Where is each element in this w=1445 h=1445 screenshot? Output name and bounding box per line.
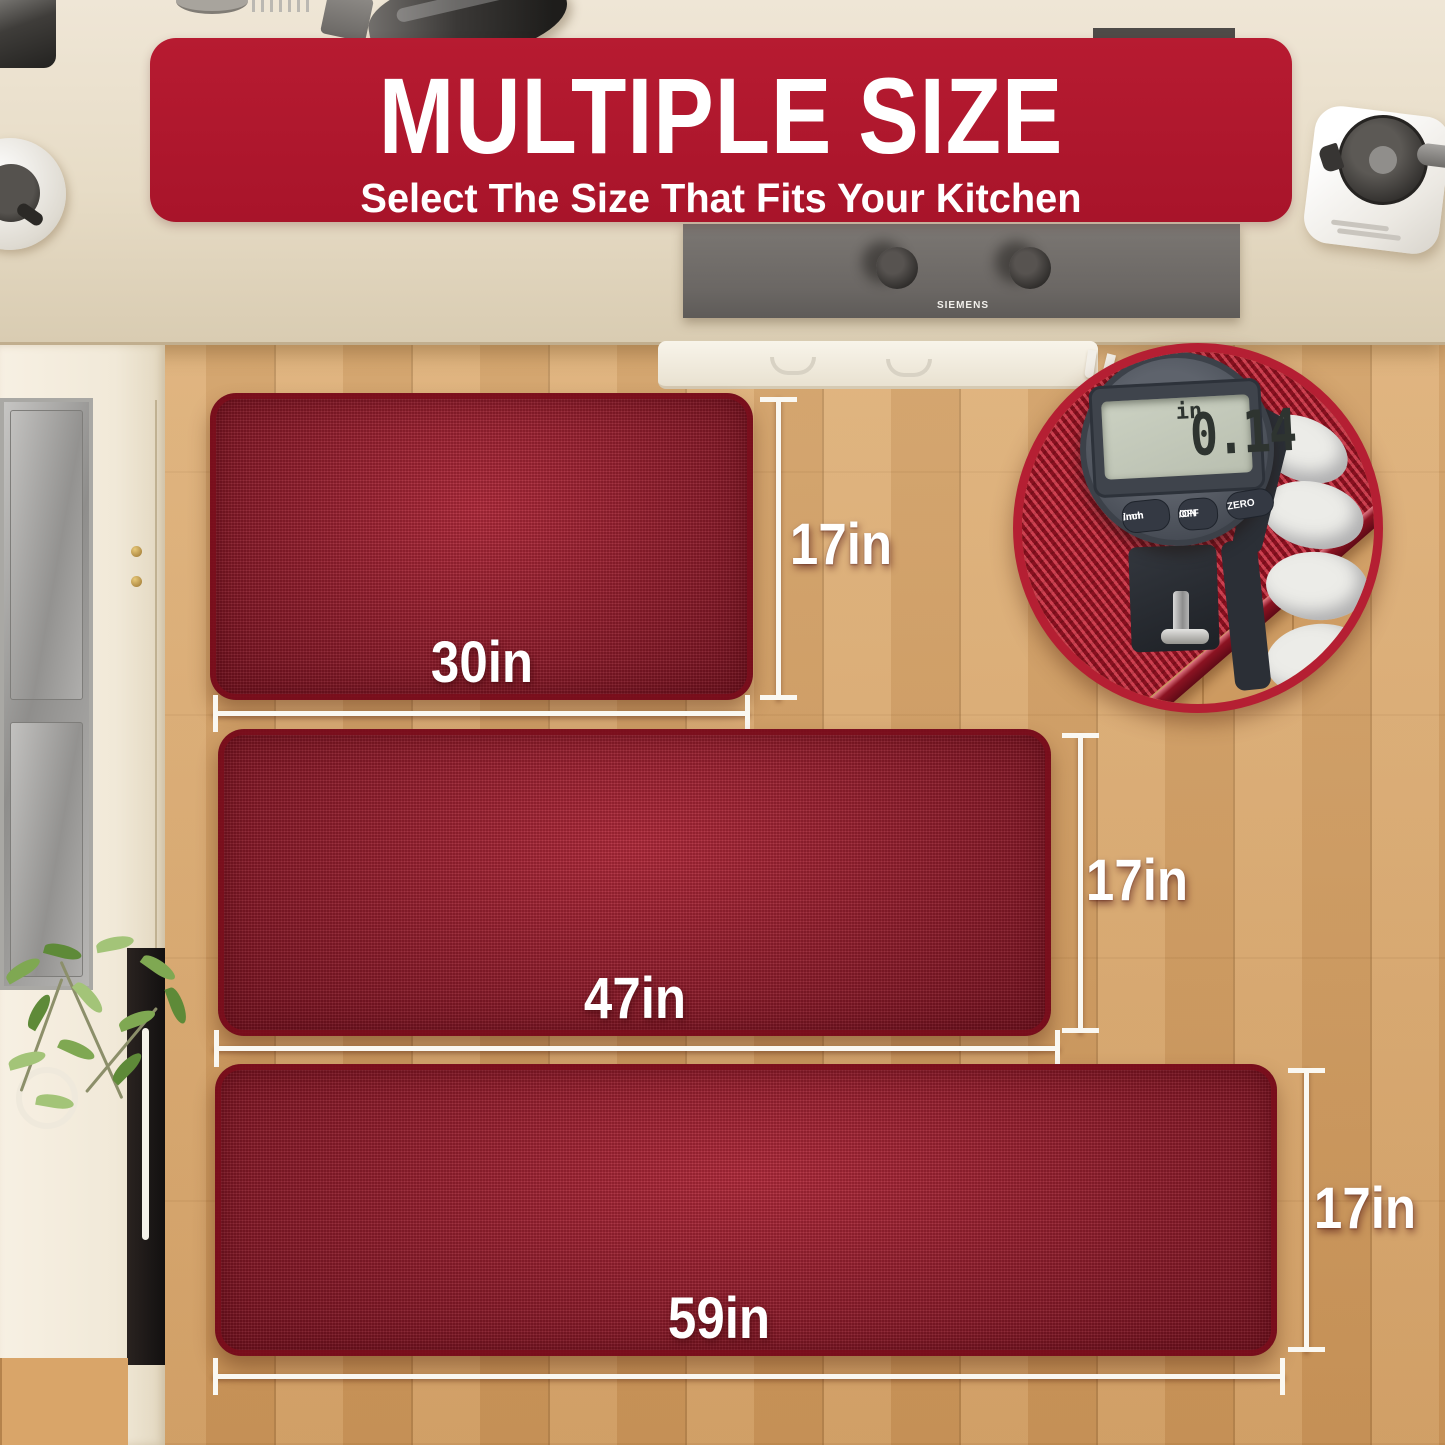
- kitchen-product-scene: SIEMENS MULTIPLE SIZE Select The Size Th…: [0, 0, 1445, 1445]
- left-cabinets: [0, 345, 165, 1445]
- gauge-lcd-display: 0.14in: [1101, 394, 1253, 480]
- coffee-maker: [1305, 105, 1445, 255]
- cooktop-knob-left: [876, 247, 918, 289]
- mat-47x17: 47in: [218, 729, 1051, 1036]
- gauge-button-inch-mm: inch /mm: [1120, 498, 1171, 535]
- mat3-width-label: 59in: [668, 1290, 770, 1348]
- cooktop-knob-right: [1009, 247, 1051, 289]
- mat-30x17: 30in: [210, 393, 753, 700]
- gauge-unit: in: [1175, 397, 1203, 428]
- promo-banner: MULTIPLE SIZE Select The Size That Fits …: [150, 38, 1292, 222]
- thickness-gauge-head: 0.14in inch /mm OFF /ON ZERO: [1080, 352, 1274, 546]
- mat1-width-label: 30in: [430, 634, 532, 692]
- mat1-width-dimension-line: [213, 711, 750, 716]
- mat2-width-label: 47in: [583, 970, 685, 1028]
- gauge-reading: 0.14: [1188, 392, 1297, 473]
- mat2-width-dimension-line: [214, 1046, 1060, 1051]
- plant-leaf: [57, 1036, 97, 1064]
- gauge-anvil: [1161, 629, 1209, 644]
- glove-finger: [1263, 619, 1374, 701]
- thickness-inset-circle: 0.14in inch /mm OFF /ON ZERO: [1013, 343, 1383, 713]
- gauge-button-label: ZERO: [1226, 498, 1255, 513]
- drawer-handle: [886, 359, 932, 377]
- gauge-button-off-on: OFF /ON: [1177, 497, 1219, 532]
- steel-appliance: [0, 398, 93, 990]
- plant-leaf: [95, 934, 135, 953]
- appliance-top-left: [0, 0, 56, 68]
- cooktop-panel: SIEMENS: [683, 224, 1240, 318]
- gauge-screen-bezel: 0.14in: [1088, 378, 1266, 499]
- glove-finger: [1264, 549, 1370, 624]
- banner-title: MULTIPLE SIZE: [241, 62, 1200, 170]
- plant-leaf: [164, 985, 189, 1025]
- mat2-height-label: 17in: [1080, 852, 1194, 910]
- cabinet-knob: [131, 546, 142, 557]
- mat1-height-dimension-line: [776, 397, 781, 700]
- plant-leaf: [43, 940, 83, 962]
- mat1-height-label: 17in: [784, 516, 898, 574]
- coffee-maker-lid-hub: [1369, 146, 1397, 174]
- plant-leaf: [140, 951, 179, 983]
- gauge-button-label: /ON: [1179, 509, 1197, 521]
- gauge-button-label: /mm: [1123, 511, 1145, 524]
- plant-leaf: [3, 954, 42, 984]
- floor-patch-bottom-left: [0, 1358, 128, 1445]
- mat-59x17: 59in: [215, 1064, 1277, 1356]
- trivet-rack: [252, 0, 310, 12]
- mat3-width-dimension-line: [213, 1374, 1285, 1379]
- mat3-height-label: 17in: [1308, 1180, 1422, 1238]
- cooktop-brand-label: SIEMENS: [923, 300, 1003, 311]
- cabinet-door-seam: [155, 400, 157, 960]
- drawer-handle: [770, 357, 816, 375]
- banner-subtitle: Select The Size That Fits Your Kitchen: [167, 178, 1275, 219]
- cabinet-knob: [131, 576, 142, 587]
- steel-panel-upper: [10, 410, 83, 700]
- potted-plant: [0, 935, 215, 1215]
